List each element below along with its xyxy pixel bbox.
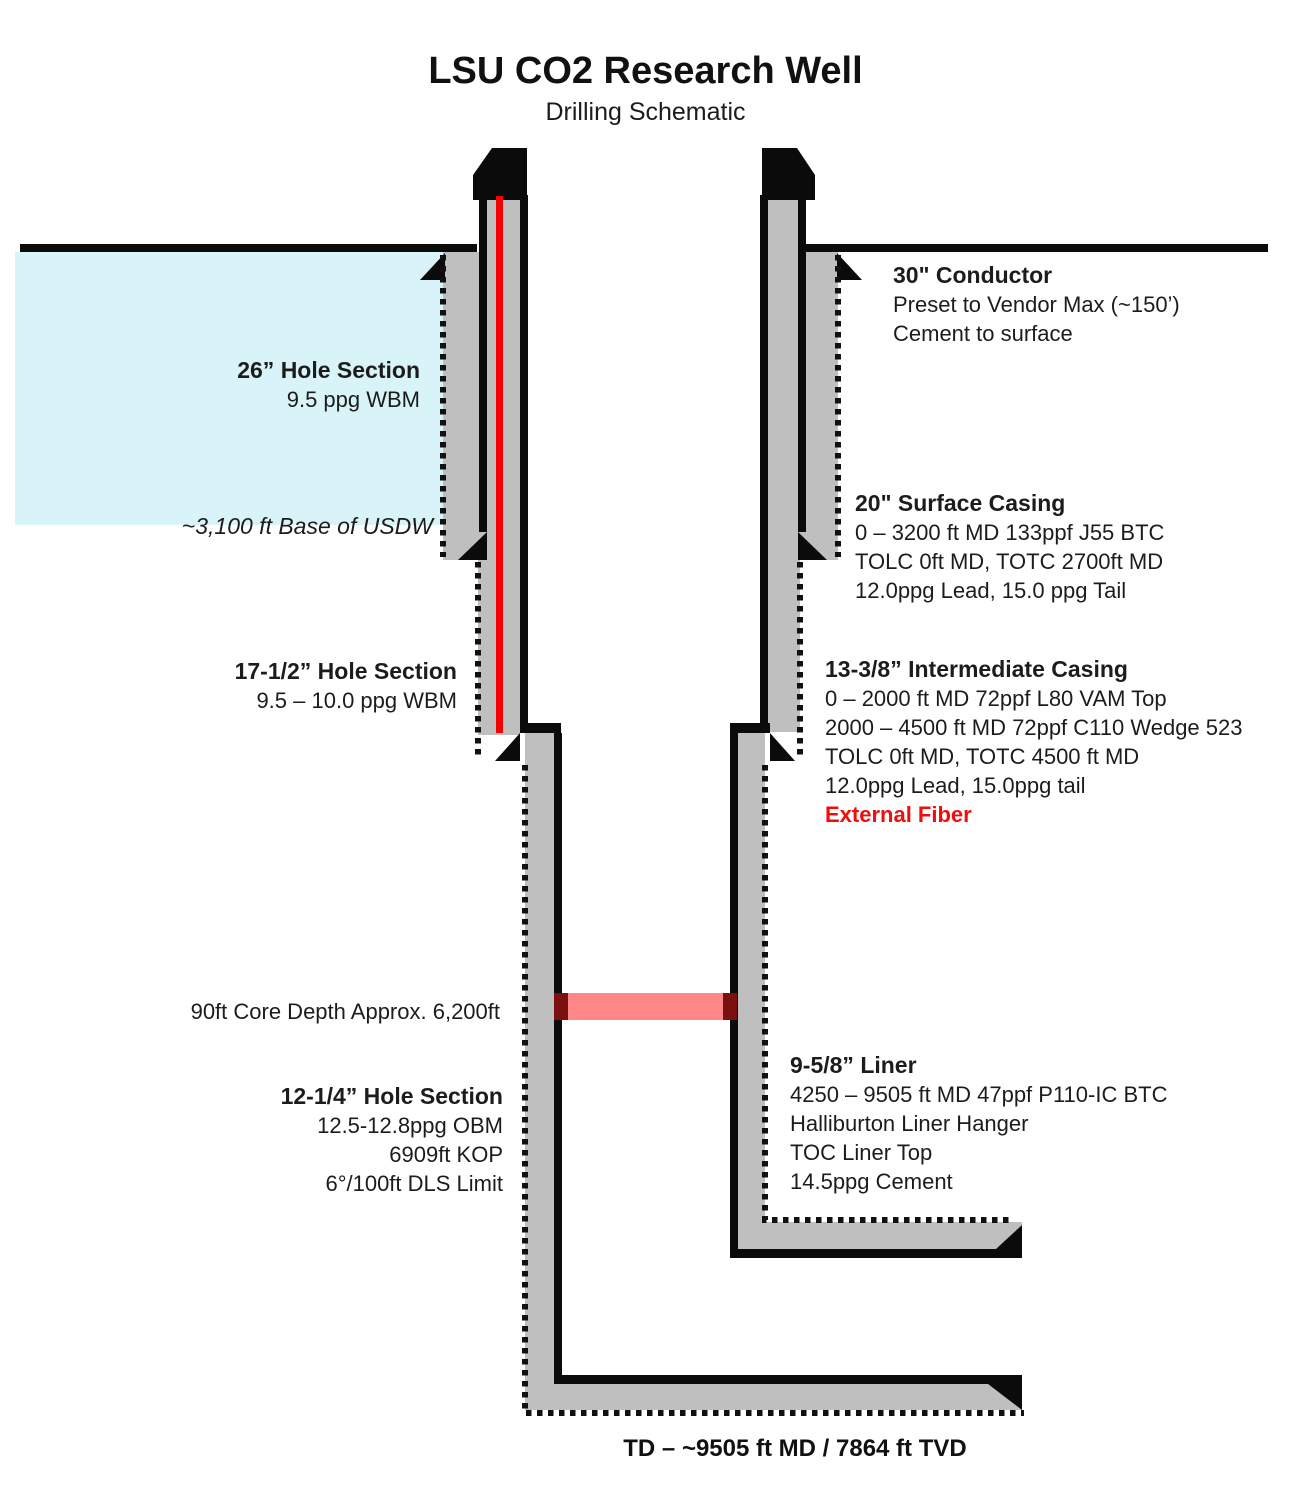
liner-label-line: Halliburton Liner Hanger — [790, 1109, 1167, 1138]
liner-label-line: 14.5ppg Cement — [790, 1167, 1167, 1196]
intermediate-casing-label-line: 2000 – 4500 ft MD 72ppf C110 Wedge 523 — [825, 713, 1242, 742]
core-depth-label: 90ft Core Depth Approx. 6,200ft — [191, 997, 500, 1026]
hole-12-label-line: 6909ft KOP — [281, 1140, 503, 1169]
hole-17-label-title: 17-1/2” Hole Section — [235, 657, 457, 686]
hole-26-label-title: 26” Hole Section — [237, 356, 420, 385]
core-interval-band — [554, 993, 737, 1020]
td-label: TD – ~9505 ft MD / 7864 ft TVD — [495, 1435, 1095, 1463]
conductor-label-line: Preset to Vendor Max (~150’) — [893, 290, 1180, 319]
liner-label: 9-5/8” Liner 4250 – 9505 ft MD 47ppf P11… — [790, 1051, 1167, 1196]
cement-right-below-surface-shoe — [768, 560, 800, 732]
hole-12-label-line: 6°/100ft DLS Limit — [281, 1169, 503, 1198]
liner-label-line: TOC Liner Top — [790, 1138, 1167, 1167]
surface-casing-label-line: 0 – 3200 ft MD 133ppf J55 BTC — [855, 518, 1164, 547]
hole-17-label-line: 9.5 – 10.0 ppg WBM — [235, 686, 457, 715]
liner-line-left — [554, 733, 562, 1383]
hole-26-label: 26” Hole Section 9.5 ppg WBM — [237, 356, 420, 414]
intermediate-casing-label: 13-3/8” Intermediate Casing 0 – 2000 ft … — [825, 655, 1242, 829]
intermediate-casing-line-right — [760, 195, 768, 733]
liner-label-title: 9-5/8” Liner — [790, 1051, 1167, 1080]
intermediate-casing-label-line: 12.0ppg Lead, 15.0ppg tail — [825, 771, 1242, 800]
surface-casing-label-title: 20" Surface Casing — [855, 489, 1164, 518]
intermediate-casing-line-left — [520, 195, 528, 733]
conductor-label: 30" Conductor Preset to Vendor Max (~150… — [893, 261, 1180, 348]
conductor-label-title: 30" Conductor — [893, 261, 1180, 290]
hole-17-label: 17-1/2” Hole Section 9.5 – 10.0 ppg WBM — [235, 657, 457, 715]
td-label-text: TD – ~9505 ft MD / 7864 ft TVD — [623, 1435, 966, 1462]
core-depth-label-text: 90ft Core Depth Approx. 6,200ft — [191, 997, 500, 1026]
surface-casing-label: 20" Surface Casing 0 – 3200 ft MD 133ppf… — [855, 489, 1164, 605]
core-band-cap-left — [554, 993, 568, 1020]
hole-26-label-line: 9.5 ppg WBM — [237, 385, 420, 414]
hole-12-label-line: 12.5-12.8ppg OBM — [281, 1111, 503, 1140]
intermediate-casing-label-title: 13-3/8” Intermediate Casing — [825, 655, 1242, 684]
intermediate-casing-label-line: 0 – 2000 ft MD 72ppf L80 VAM Top — [825, 684, 1242, 713]
surface-casing-line-right — [798, 195, 806, 532]
core-band-cap-right — [723, 993, 737, 1020]
conductor-label-line: Cement to surface — [893, 319, 1180, 348]
surface-casing-label-line: 12.0ppg Lead, 15.0 ppg Tail — [855, 576, 1164, 605]
intermediate-shoe-step-right — [730, 723, 770, 733]
surface-casing-label-line: TOLC 0ft MD, TOTC 2700ft MD — [855, 547, 1164, 576]
intermediate-shoe-right — [770, 733, 795, 761]
usdw-base-label-text: ~3,100 ft Base of USDW — [182, 512, 433, 541]
ground-line-left — [20, 244, 477, 252]
td-bottom-bar — [554, 1375, 1022, 1384]
hole-12-label-title: 12-1/4” Hole Section — [281, 1082, 503, 1111]
drilling-schematic-page: LSU CO2 Research Well Drilling Schematic — [0, 0, 1291, 1501]
liner-bottom-bar — [730, 1249, 1022, 1258]
surface-casing-line-left — [479, 195, 487, 532]
external-fiber-label: External Fiber — [825, 800, 1242, 829]
ground-line-right — [806, 244, 1268, 252]
intermediate-shoe-left — [495, 733, 520, 761]
wellhead-cap-left — [473, 148, 527, 200]
intermediate-shoe-step-left — [520, 723, 561, 733]
usdw-base-label: ~3,100 ft Base of USDW — [182, 512, 433, 541]
intermediate-casing-label-line: TOLC 0ft MD, TOTC 4500 ft MD — [825, 742, 1242, 771]
wellhead-cap-right — [762, 148, 815, 200]
external-fiber-line — [496, 196, 503, 733]
hole-12-label: 12-1/4” Hole Section 12.5-12.8ppg OBM 69… — [281, 1082, 503, 1198]
liner-label-line: 4250 – 9505 ft MD 47ppf P110-IC BTC — [790, 1080, 1167, 1109]
